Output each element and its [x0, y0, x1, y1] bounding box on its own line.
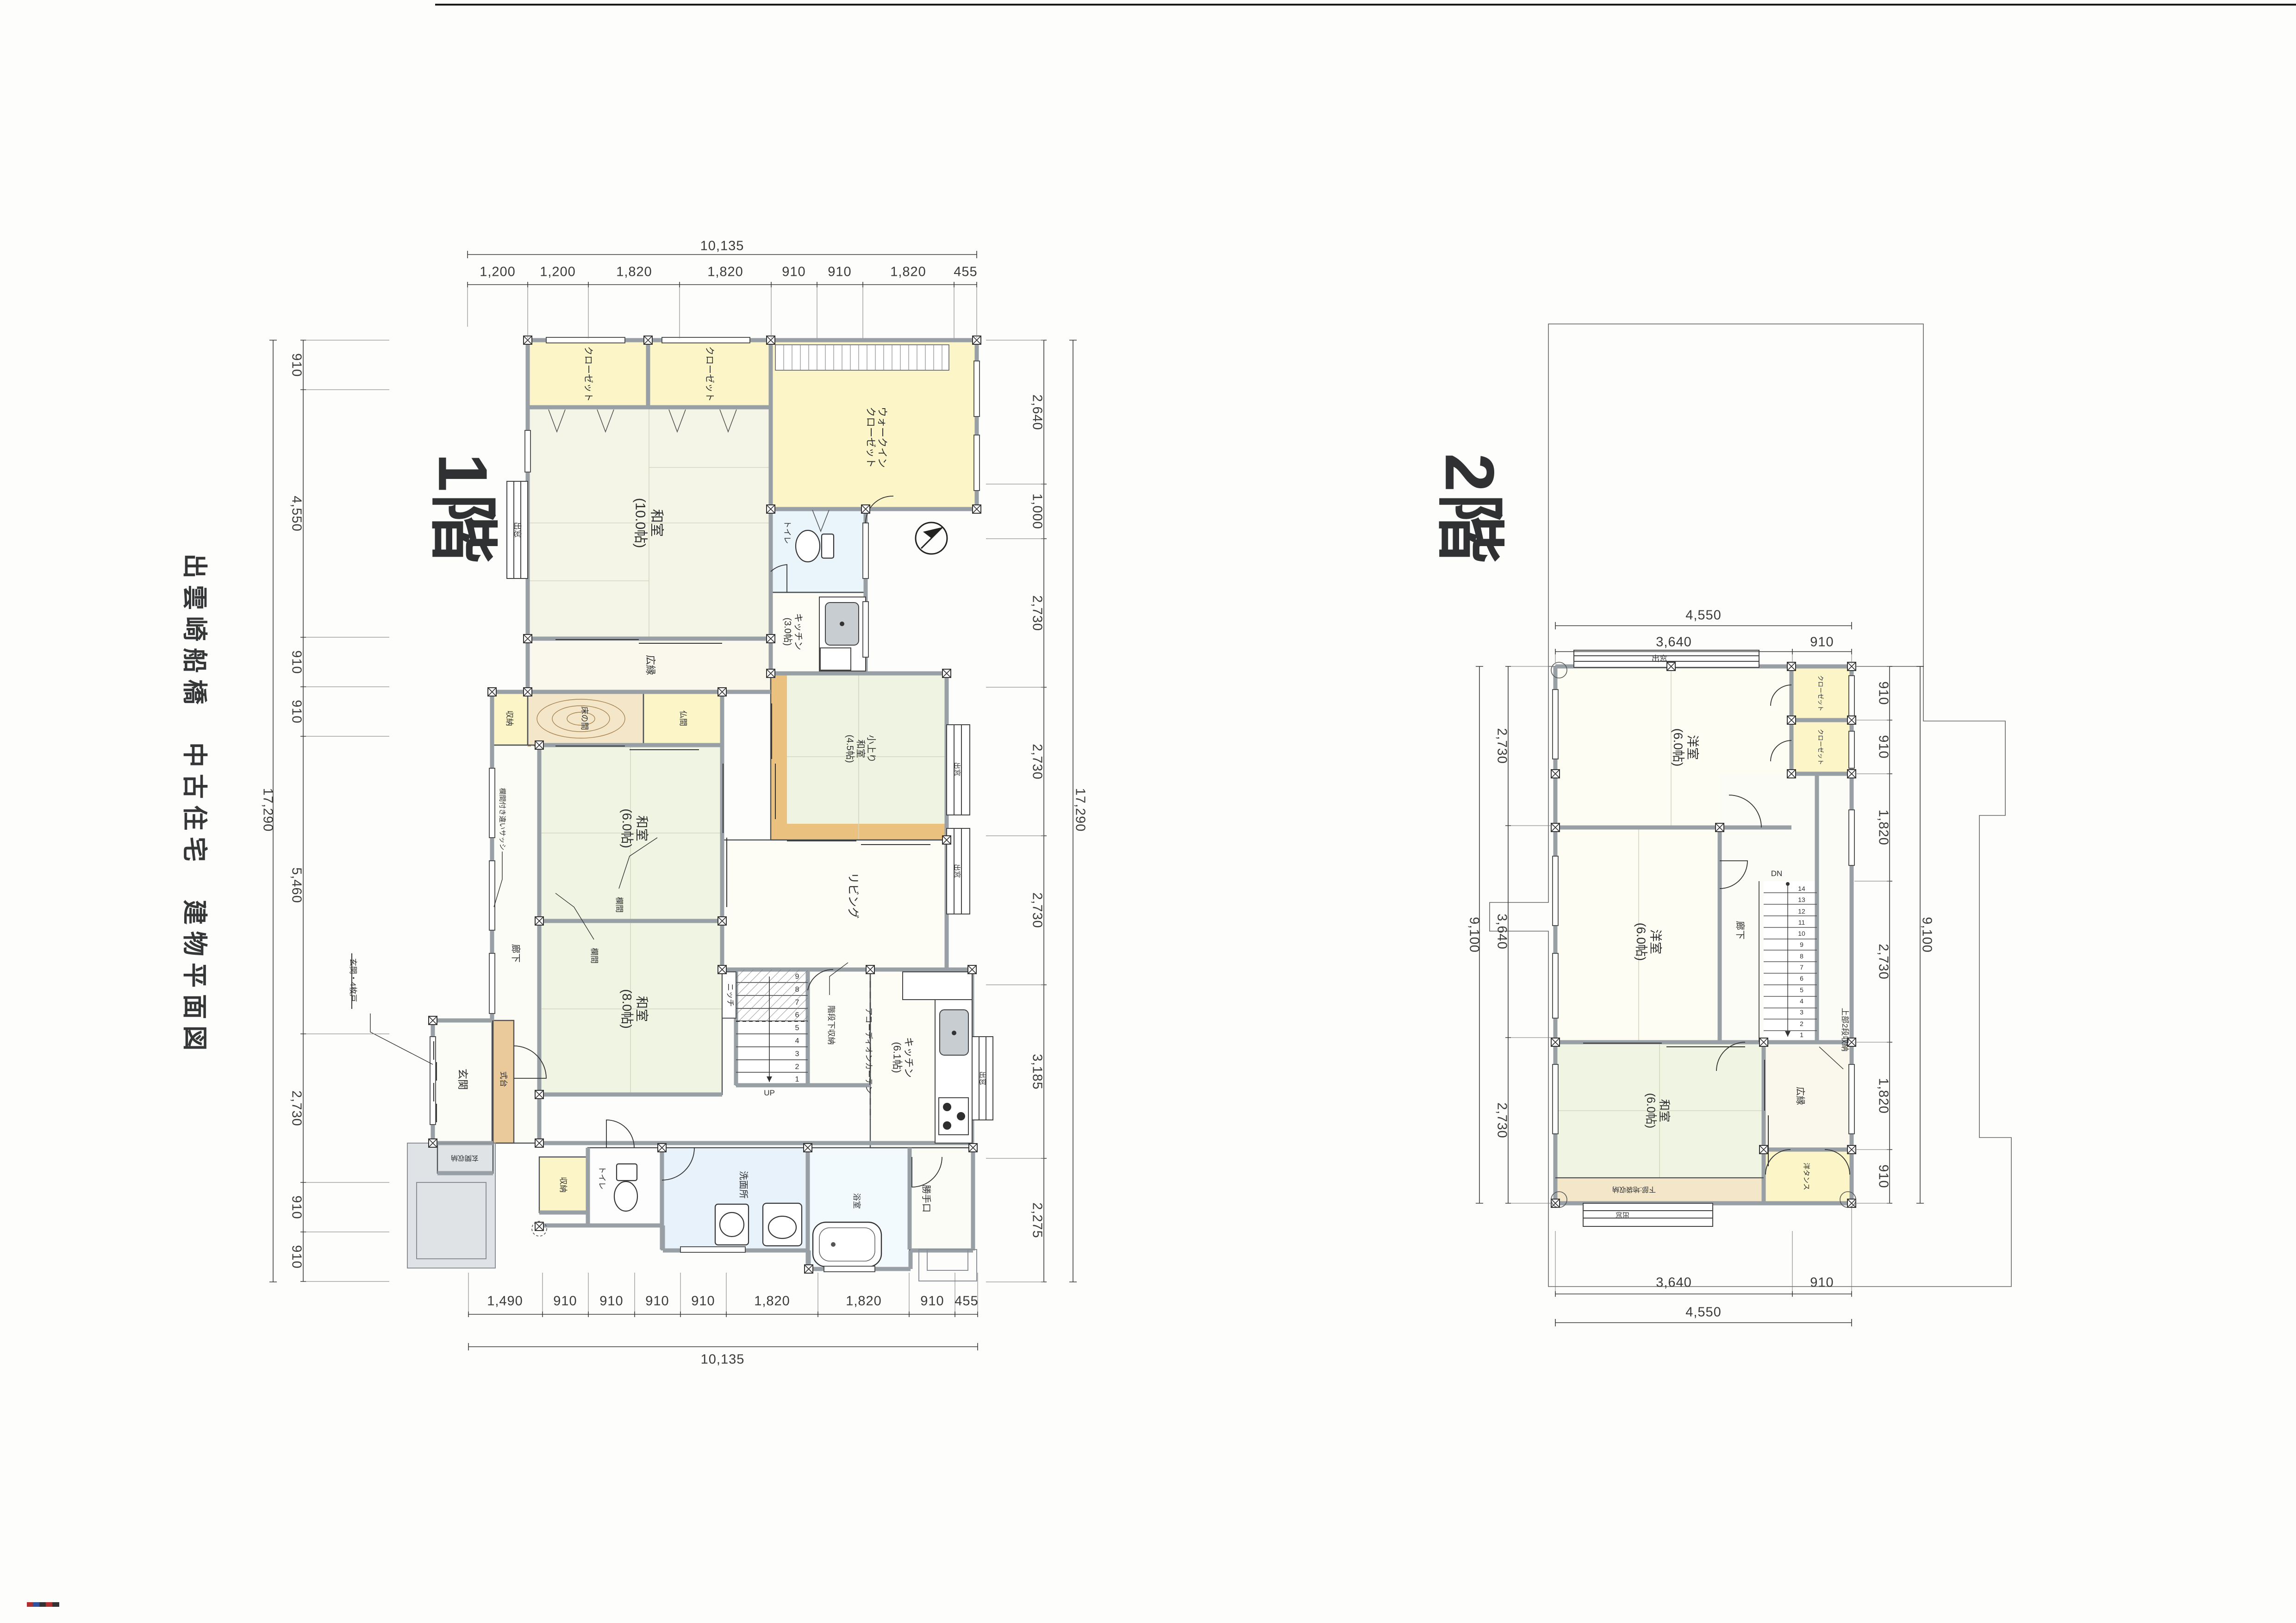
- room-shikidai: [493, 1020, 514, 1143]
- room-kaidan-shuno: [808, 970, 870, 1085]
- room-closet2: [648, 340, 771, 407]
- room-jibukuro: [1555, 1178, 1764, 1203]
- bathtub-icon: [813, 1222, 881, 1267]
- room-genkan: [433, 1020, 493, 1143]
- room-shuno-btm: [539, 1157, 588, 1213]
- room-yotansu: [1764, 1150, 1852, 1203]
- room-yoshitsuB: [1555, 827, 1720, 1042]
- wic-slats: [775, 345, 949, 370]
- floor2-room-fills: [1555, 666, 1852, 1203]
- toilet-btm-icon: [614, 1164, 637, 1211]
- floorplan-sheet: 出雲崎船橋 中古住宅 建物平面図 1階 2階 10,135 1,200 1,20…: [0, 0, 2296, 1623]
- room-closetB: [1791, 720, 1852, 774]
- room-butsuma: [643, 692, 722, 745]
- room-closetA: [1791, 666, 1852, 720]
- north-arrow-icon: [916, 522, 947, 554]
- room-living: [722, 840, 947, 970]
- room-shuno-mid: [492, 692, 528, 745]
- toilet-top-icon: [796, 530, 834, 562]
- room-hiroen2: [1764, 1042, 1852, 1150]
- room-hiroen: [528, 639, 771, 692]
- room-tokonoma: [528, 692, 643, 745]
- floor2-plan: [1476, 324, 2011, 1326]
- room-katteguchi: [910, 1148, 972, 1250]
- floorplan-drawing: [0, 0, 2296, 1623]
- genkan-porch: [407, 1143, 495, 1268]
- room-closet1: [528, 340, 648, 407]
- katteguchi-steps: [919, 1250, 977, 1281]
- kitchen3-counter: [819, 597, 866, 671]
- floor1-plan: [269, 251, 1077, 1350]
